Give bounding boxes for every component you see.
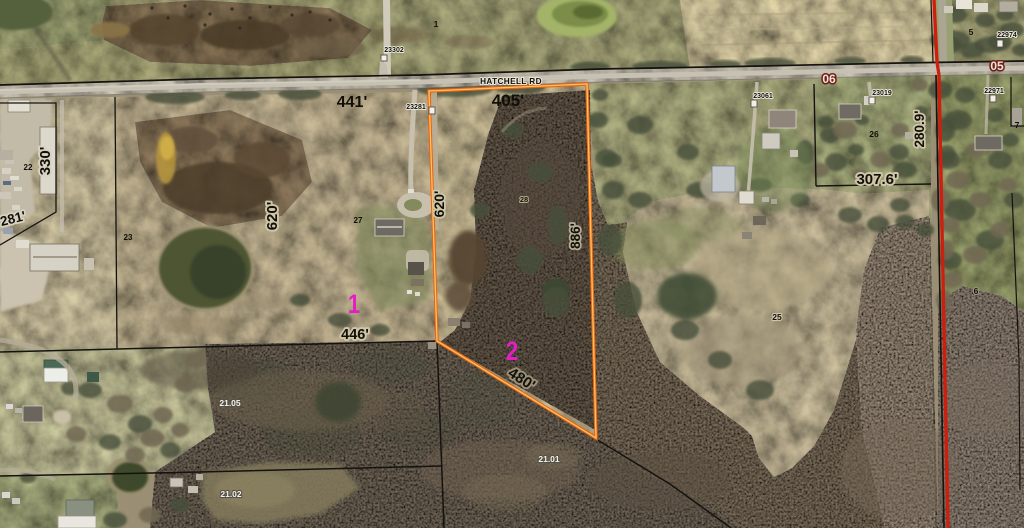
svg-text:26: 26 [869,129,879,139]
svg-text:22: 22 [24,163,33,172]
svg-text:620': 620' [431,191,447,218]
svg-text:405': 405' [492,91,524,110]
svg-text:HATCHELL RD: HATCHELL RD [480,77,542,86]
svg-text:25: 25 [772,312,782,322]
svg-text:1: 1 [348,290,361,320]
svg-text:23281: 23281 [406,104,426,111]
svg-text:446': 446' [341,327,369,343]
svg-text:280.9': 280.9' [912,111,927,148]
svg-text:307.6': 307.6' [856,171,897,188]
svg-text:21.01: 21.01 [538,454,560,464]
svg-text:330': 330' [37,147,54,176]
svg-text:21.02: 21.02 [220,489,242,499]
svg-text:06: 06 [822,72,836,86]
svg-text:7: 7 [1015,120,1020,130]
svg-text:23302: 23302 [384,47,404,54]
svg-text:27: 27 [354,216,363,225]
svg-text:23019: 23019 [872,90,892,97]
svg-text:05: 05 [990,59,1004,73]
svg-text:1: 1 [434,19,439,29]
svg-text:23: 23 [124,233,133,242]
svg-text:2: 2 [506,337,518,367]
svg-text:21.05: 21.05 [219,398,241,408]
svg-text:6: 6 [974,286,979,296]
svg-text:22971: 22971 [984,88,1004,95]
svg-text:441': 441' [337,94,368,111]
svg-text:28: 28 [520,195,528,204]
svg-text:22974: 22974 [997,32,1017,39]
svg-text:620': 620' [264,202,281,231]
svg-text:886': 886' [568,223,583,249]
svg-text:5: 5 [969,27,974,37]
svg-text:23061: 23061 [753,93,773,100]
